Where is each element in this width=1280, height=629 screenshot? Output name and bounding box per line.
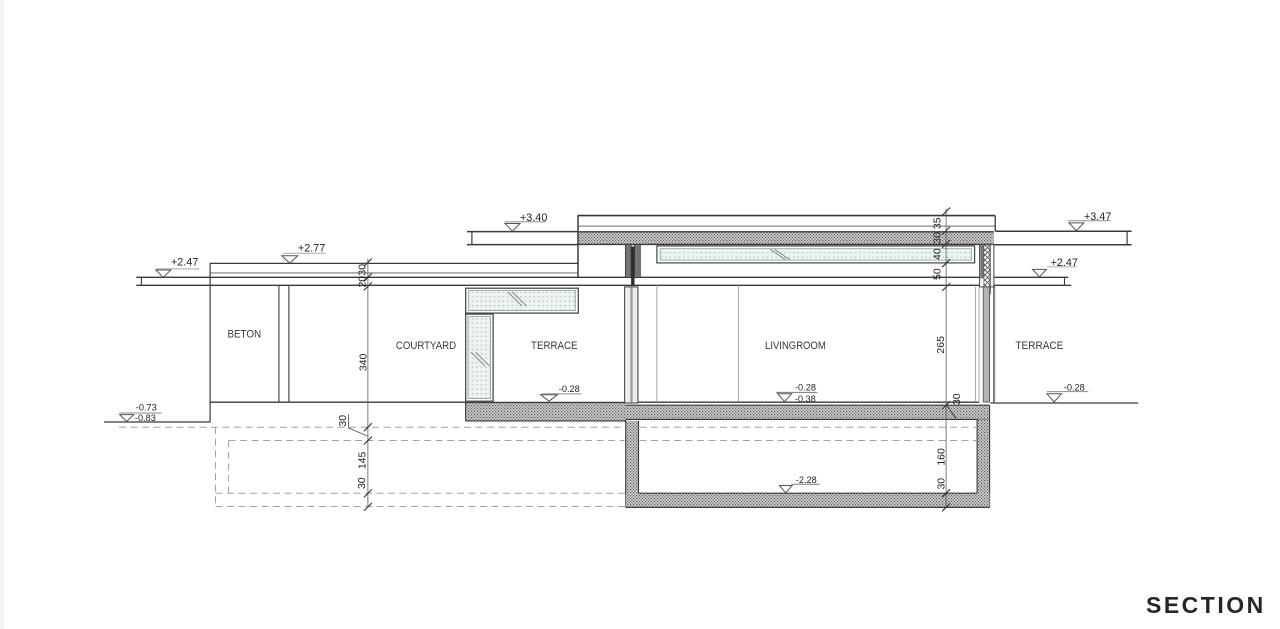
svg-text:-0.28: -0.28	[795, 383, 816, 393]
svg-text:50: 50	[931, 268, 943, 280]
svg-text:-0.38: -0.38	[795, 394, 816, 404]
svg-text:BETON: BETON	[227, 329, 261, 341]
svg-text:SECTION: SECTION	[1146, 592, 1266, 618]
svg-text:340: 340	[358, 353, 370, 371]
svg-text:LIVINGROOM: LIVINGROOM	[765, 340, 826, 352]
svg-text:-0.83: -0.83	[135, 413, 156, 423]
svg-text:-0.73: -0.73	[136, 402, 157, 412]
svg-text:30: 30	[357, 264, 369, 276]
svg-text:-2.28: -2.28	[796, 475, 817, 485]
svg-text:30: 30	[951, 393, 963, 405]
svg-text:-0.28: -0.28	[559, 384, 580, 394]
svg-text:30: 30	[935, 478, 947, 490]
svg-text:+2.47: +2.47	[171, 256, 198, 268]
svg-text:COURTYARD: COURTYARD	[396, 340, 457, 352]
svg-text:30: 30	[337, 415, 349, 427]
svg-text:35: 35	[931, 217, 943, 229]
svg-text:TERRACE: TERRACE	[1015, 340, 1063, 352]
svg-text:265: 265	[935, 336, 947, 354]
svg-text:-0.28: -0.28	[1064, 382, 1085, 392]
svg-text:30: 30	[931, 232, 943, 244]
svg-text:+2.77: +2.77	[298, 242, 325, 254]
svg-text:40: 40	[931, 248, 943, 260]
svg-text:30: 30	[356, 477, 368, 489]
svg-text:TERRACE: TERRACE	[531, 340, 578, 352]
svg-text:145: 145	[356, 451, 368, 469]
svg-text:160: 160	[935, 448, 947, 466]
svg-text:20: 20	[357, 276, 369, 288]
